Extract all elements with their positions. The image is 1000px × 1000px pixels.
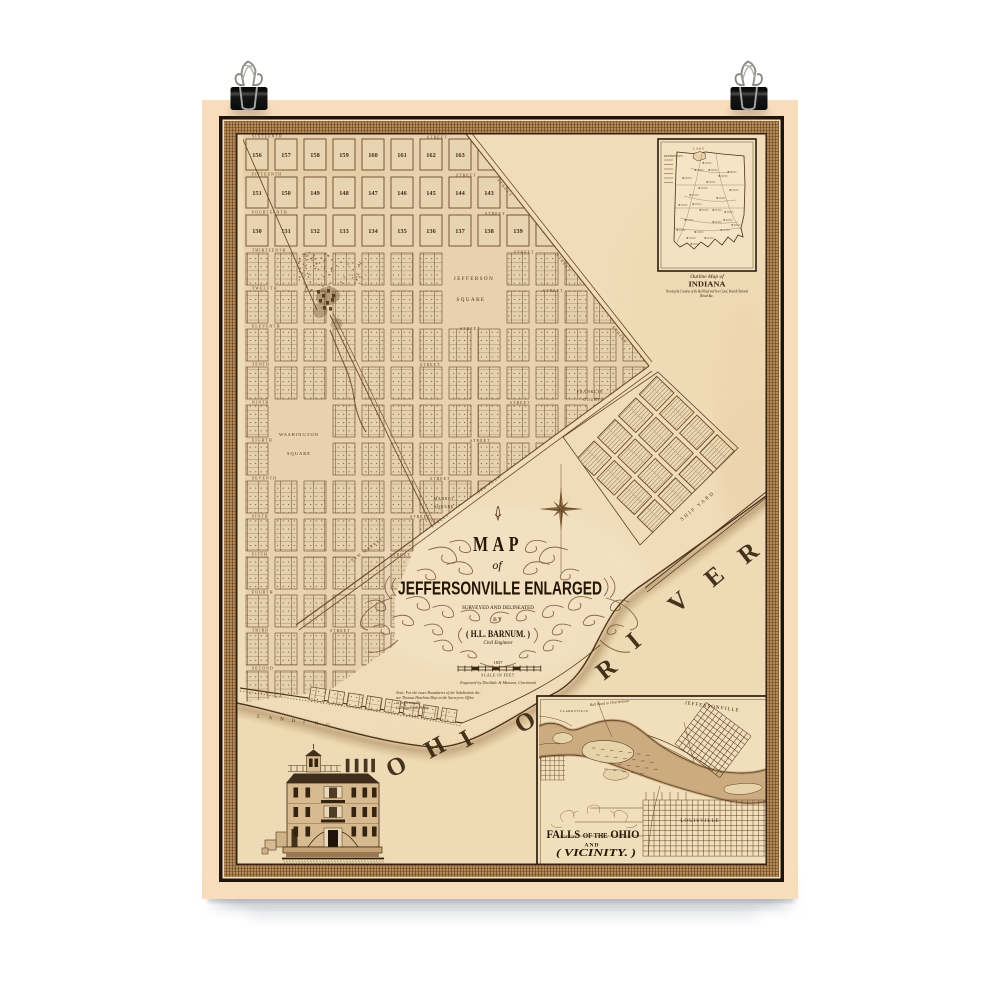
svg-text:REFERENCES: REFERENCES: [664, 154, 683, 158]
svg-text:TWELFTH: TWELFTH: [252, 287, 277, 291]
svg-text:FOURTH: FOURTH: [252, 591, 274, 595]
svg-text:STREET: STREET: [470, 439, 491, 443]
svg-text:WASHINGTON: WASHINGTON: [279, 432, 319, 437]
svg-text:MAP: MAP: [473, 532, 523, 556]
svg-text:SCALE IN FEET: SCALE IN FEET: [481, 674, 515, 678]
svg-text:SEVENTH: SEVENTH: [252, 477, 277, 481]
svg-text:FRANKLIN: FRANKLIN: [577, 389, 604, 394]
svg-text:Civil Engineer: Civil Engineer: [483, 641, 512, 646]
svg-text:STREET: STREET: [514, 251, 535, 255]
svg-text:FIFTH: FIFTH: [252, 553, 268, 557]
svg-text:Road &c.: Road &c.: [699, 294, 714, 298]
svg-text:JEFFERSONVILLE ENLARGED: JEFFERSONVILLE ENLARGED: [398, 578, 602, 599]
svg-text:( VICINITY. ): ( VICINITY. ): [556, 848, 636, 859]
svg-text:SQUARE: SQUARE: [456, 298, 485, 303]
svg-text:STREET: STREET: [330, 629, 351, 633]
svg-text:CLARKSVILLE: CLARKSVILLE: [560, 709, 589, 713]
svg-text:TENTH: TENTH: [252, 363, 270, 367]
svg-text:STREET: STREET: [510, 401, 531, 405]
svg-text:INDIANA: INDIANA: [689, 280, 727, 289]
svg-text:SIXTEENTH: SIXTEENTH: [252, 135, 283, 139]
svg-text:SIXTH: SIXTH: [252, 515, 269, 519]
svg-text:LOUISVILLE: LOUISVILLE: [680, 819, 719, 824]
svg-text:THIRD: THIRD: [252, 629, 269, 633]
svg-text:COURT: COURT: [583, 397, 600, 402]
svg-text:STREET: STREET: [427, 136, 448, 140]
svg-text:STREET: STREET: [456, 174, 477, 178]
svg-text:( H.L. BARNUM. ): ( H.L. BARNUM. ): [466, 629, 530, 640]
svg-text:SECOND: SECOND: [252, 667, 274, 671]
svg-text:1837: 1837: [494, 660, 504, 665]
svg-text:see Thomas Hutchins Map in the: see Thomas Hutchins Map in the Surveyors…: [396, 696, 474, 700]
svg-text:FOURTEENTH: FOURTEENTH: [252, 211, 288, 215]
svg-text:Collingsworth House.: Collingsworth House.: [396, 706, 430, 710]
svg-text:STREET: STREET: [460, 327, 481, 331]
svg-text:EIGHTH: EIGHTH: [252, 439, 273, 443]
svg-text:LAKE: LAKE: [693, 147, 705, 151]
svg-text:Note: For the exact Boundaries: Note: For the exact Boundaries of the Su…: [395, 691, 481, 695]
svg-text:JEFFERSON: JEFFERSON: [454, 277, 494, 282]
svg-text:STREET: STREET: [430, 477, 451, 481]
svg-text:NINTH: NINTH: [252, 401, 269, 405]
svg-text:at Jeffersonville: at Jeffersonville: [396, 701, 421, 705]
svg-text:SQUARE: SQUARE: [287, 451, 311, 456]
svg-text:STREET: STREET: [543, 289, 564, 293]
svg-text:THIRTEENTH: THIRTEENTH: [252, 249, 286, 253]
svg-text:MARKET: MARKET: [434, 496, 455, 501]
svg-text:FIFTEENTH: FIFTEENTH: [252, 173, 282, 177]
svg-text:ELEVENTH: ELEVENTH: [252, 325, 281, 329]
svg-text:STREET: STREET: [485, 212, 506, 216]
svg-text:STREET: STREET: [420, 363, 441, 367]
svg-text:SQUARE: SQUARE: [434, 504, 454, 509]
